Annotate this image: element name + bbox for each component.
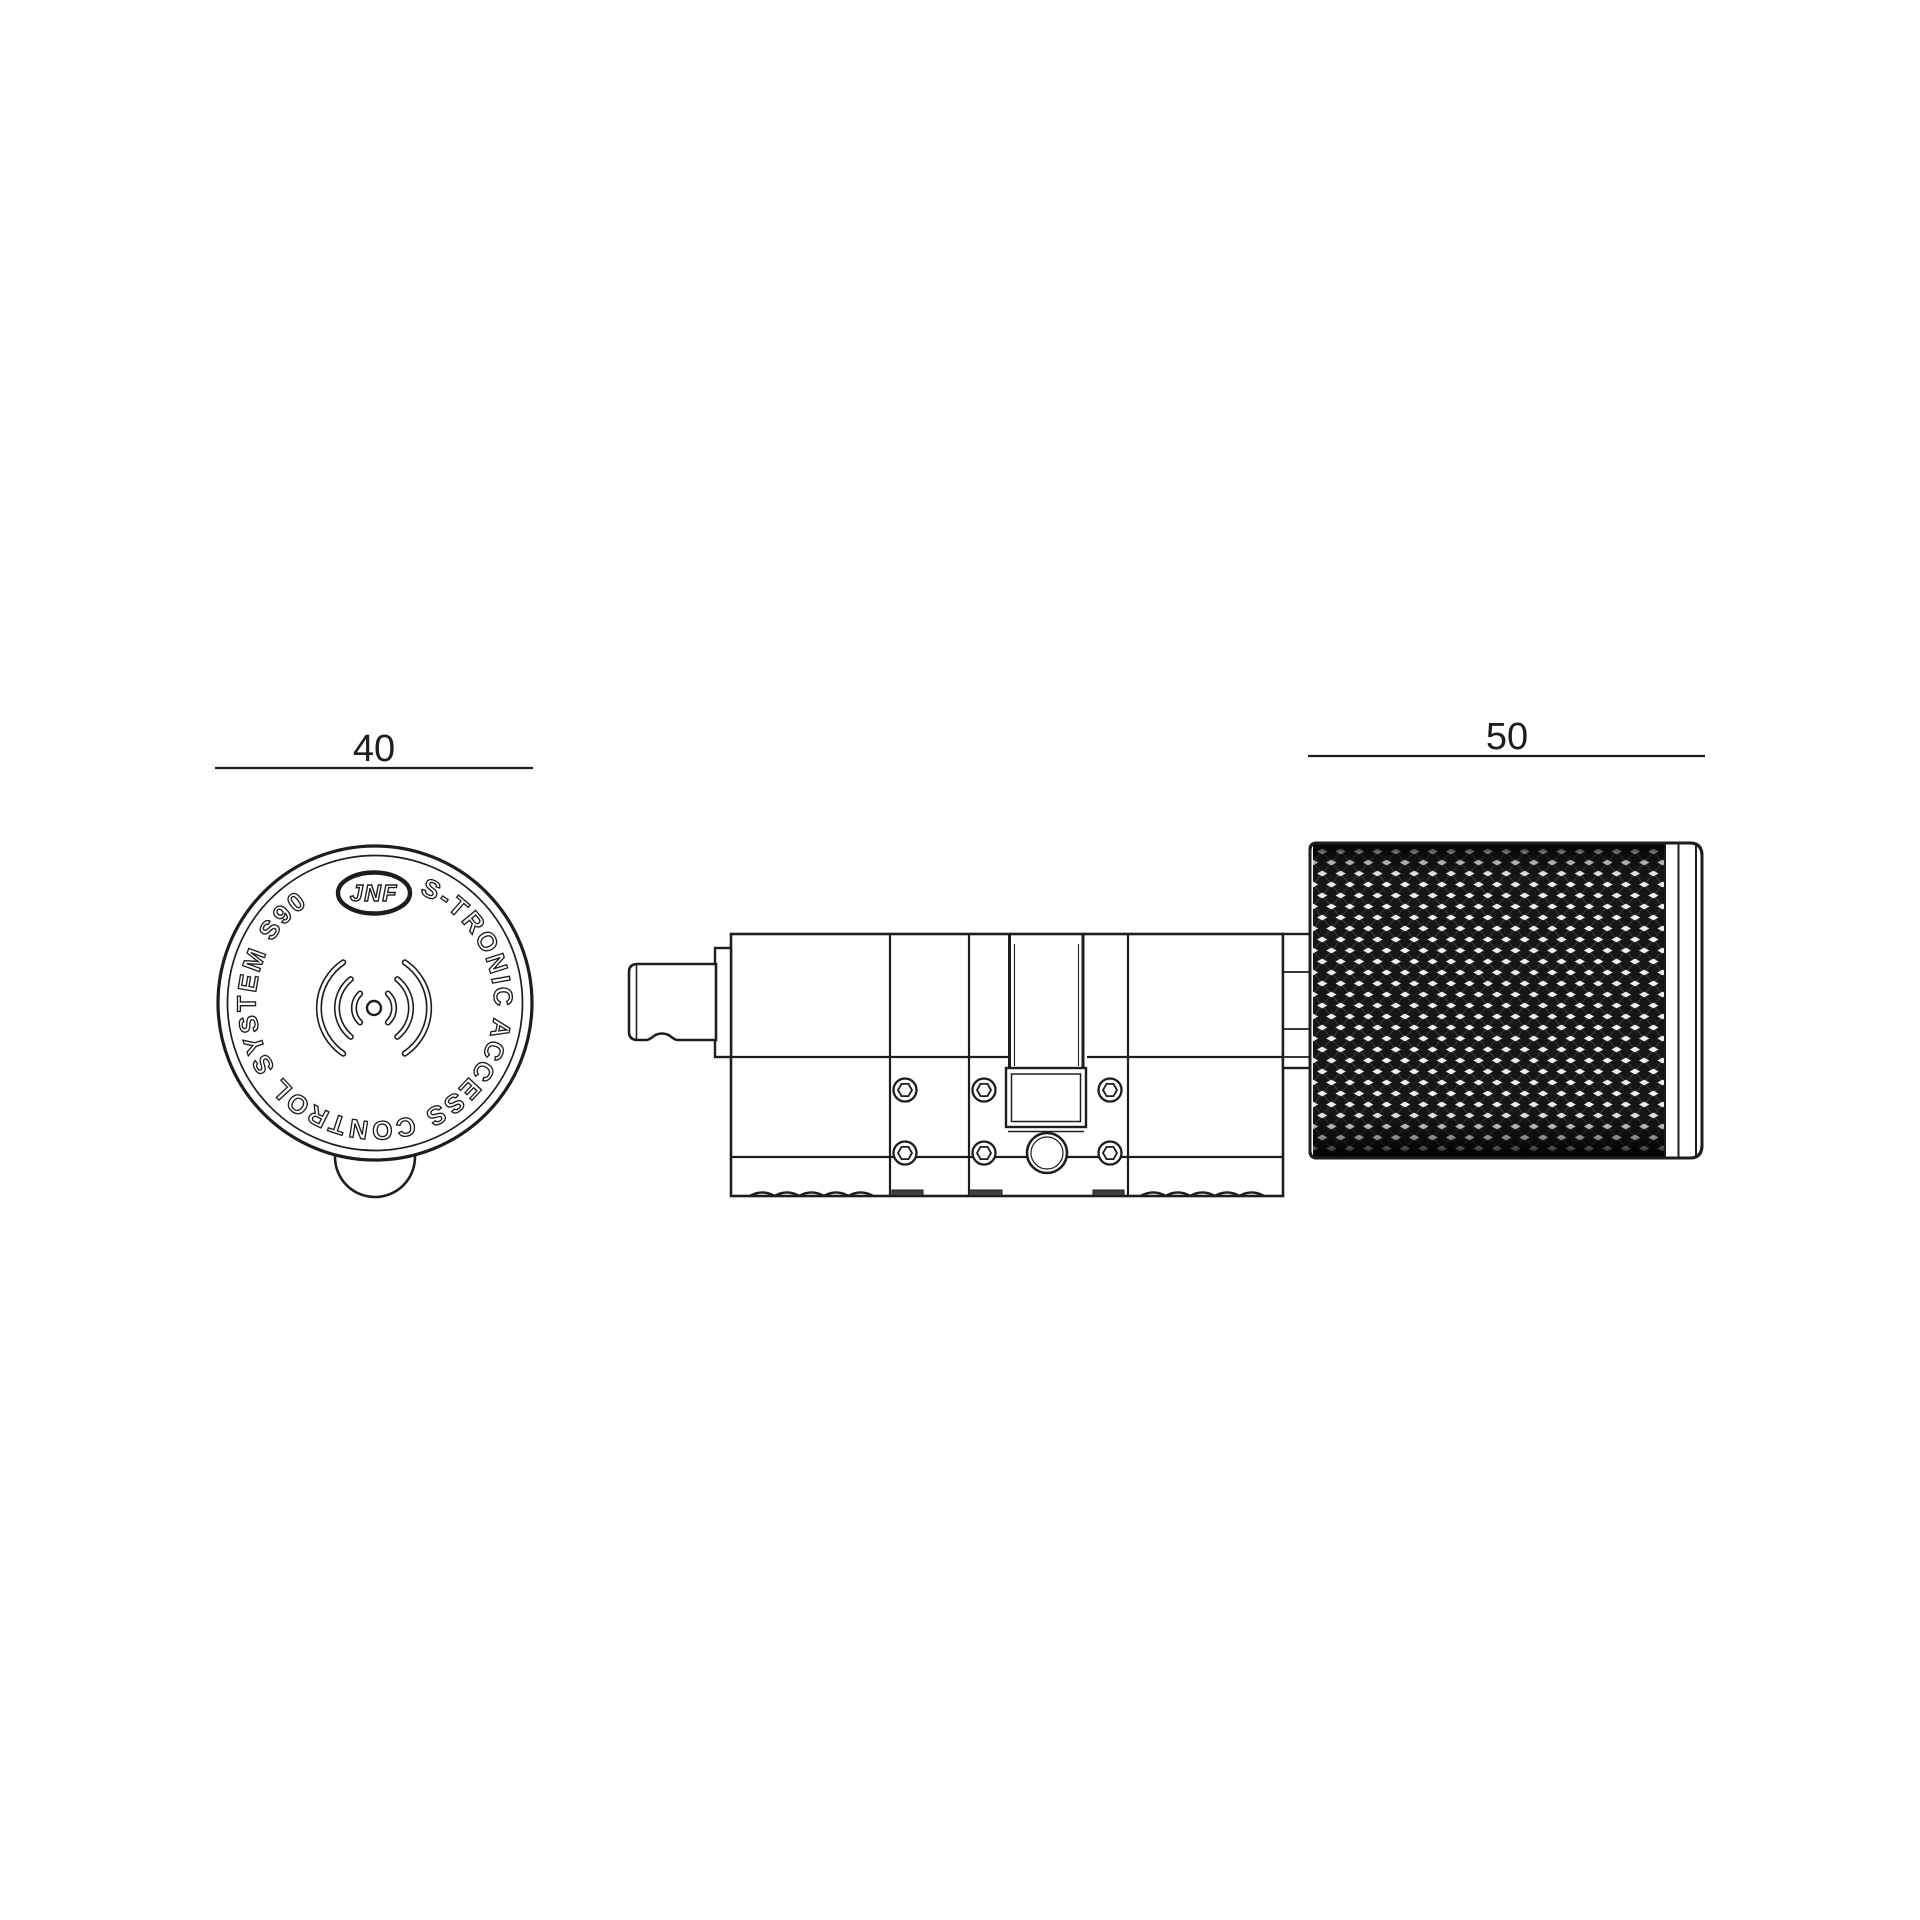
cam-window [1006, 1068, 1086, 1132]
dimension-label-40: 40 [353, 728, 395, 770]
mounting-foot [1093, 1190, 1124, 1196]
cam-follower-outer [1027, 1133, 1067, 1173]
hex-screw [894, 1079, 917, 1102]
spindle-shaft [629, 964, 716, 1040]
screw-head [894, 1142, 917, 1165]
lock-cylinder-drawing: 40 50 S-TRONIC ACCESS CONTROL SYSTEM S90… [0, 0, 1920, 1920]
knob-neck-block [1283, 934, 1310, 1068]
cam-follower [1027, 1133, 1067, 1173]
mounting-flange [715, 948, 731, 1057]
front-view: S-TRONIC ACCESS CONTROL SYSTEM S90 JNF [218, 846, 532, 1197]
cam-window-frame [1006, 1068, 1086, 1127]
knurled-knob [1310, 843, 1702, 1158]
hex-screw [973, 1079, 996, 1102]
screw-head [973, 1079, 996, 1102]
mounting-foot [969, 1190, 1002, 1196]
shaft-body [629, 964, 716, 1040]
knob-knurl-shading [1313, 843, 1665, 1158]
screw-head [1099, 1142, 1122, 1165]
screw-head [1099, 1079, 1122, 1102]
screw-head [894, 1079, 917, 1102]
hex-screw [1099, 1142, 1122, 1165]
signal-center-dot [367, 1001, 381, 1015]
hex-screw [894, 1142, 917, 1165]
jnf-logo-text: JNF [350, 880, 398, 906]
technical-drawing-page: 40 50 S-TRONIC ACCESS CONTROL SYSTEM S90… [0, 0, 1920, 1920]
knob-neck [1283, 934, 1310, 1068]
side-view [629, 843, 1702, 1196]
screw-head [973, 1142, 996, 1165]
dimension-label-50: 50 [1486, 716, 1528, 758]
mounting-foot [892, 1190, 923, 1196]
dimension-50: 50 [1308, 716, 1705, 758]
hex-screw [1099, 1079, 1122, 1102]
dimension-40: 40 [215, 728, 533, 770]
hex-screw [973, 1142, 996, 1165]
